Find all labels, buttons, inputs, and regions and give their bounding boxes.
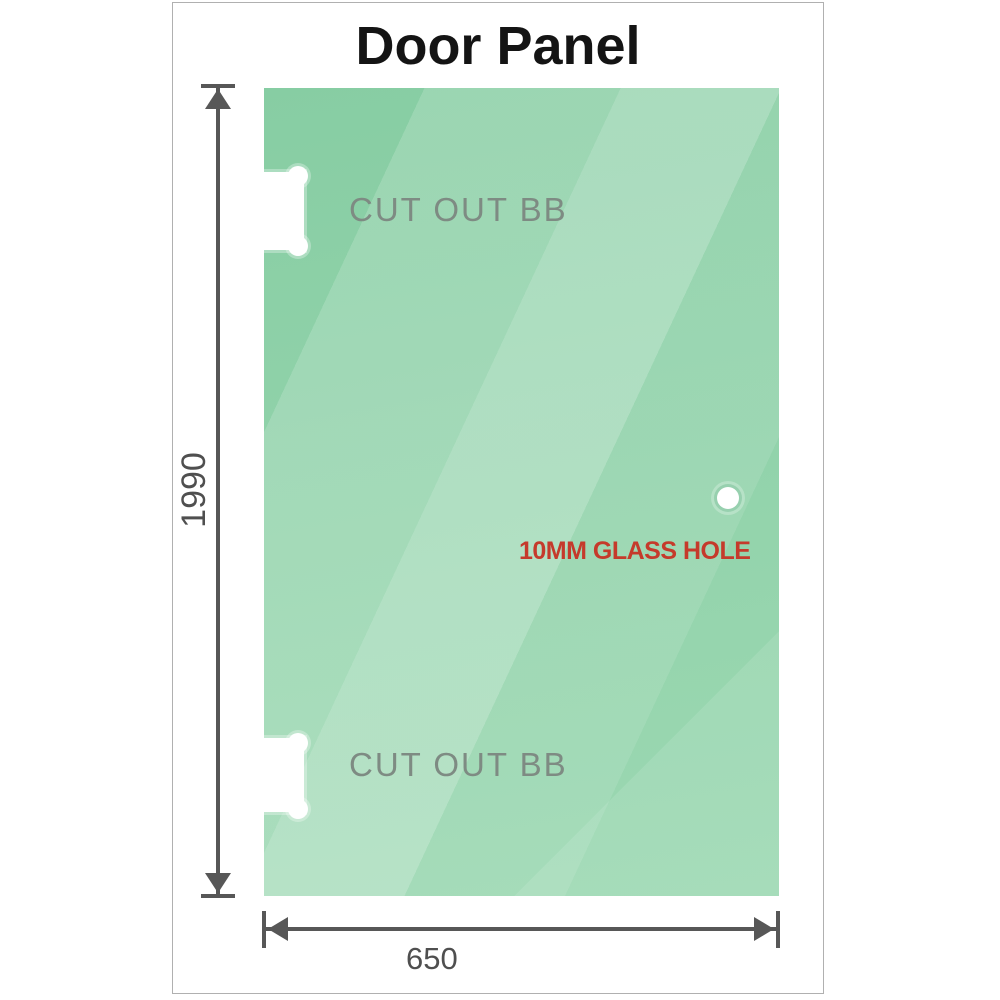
cutout-bump-icon	[288, 166, 308, 186]
arrow-down-icon	[205, 873, 231, 893]
drawing-canvas: Door Panel CUT OUT BB CUT OUT BB 10MM GL…	[0, 0, 1000, 1000]
drawing-frame: Door Panel CUT OUT BB CUT OUT BB 10MM GL…	[172, 2, 824, 994]
height-dimension-value: 1990	[174, 420, 214, 560]
glass-hole-icon	[717, 487, 739, 509]
dimension-end-cap	[201, 84, 235, 88]
cutout-top-label: CUT OUT BB	[349, 193, 568, 226]
cutout-bottom-label: CUT OUT BB	[349, 748, 568, 781]
arrow-up-icon	[205, 89, 231, 109]
cutout-bump-icon	[288, 236, 308, 256]
dimension-end-cap	[776, 911, 780, 948]
width-dimension-value: 650	[406, 943, 458, 974]
height-dimension-line	[216, 87, 220, 895]
arrow-right-icon	[754, 917, 774, 941]
glass-panel: CUT OUT BB CUT OUT BB 10MM GLASS HOLE	[264, 88, 779, 896]
dimension-end-cap	[262, 911, 266, 948]
cutout-bump-icon	[288, 733, 308, 753]
width-dimension-line	[266, 927, 777, 931]
cutout-bump-icon	[288, 799, 308, 819]
page-title: Door Panel	[173, 15, 823, 77]
dimension-end-cap	[201, 894, 235, 898]
glass-hole-label: 10MM GLASS HOLE	[519, 539, 750, 564]
arrow-left-icon	[268, 917, 288, 941]
